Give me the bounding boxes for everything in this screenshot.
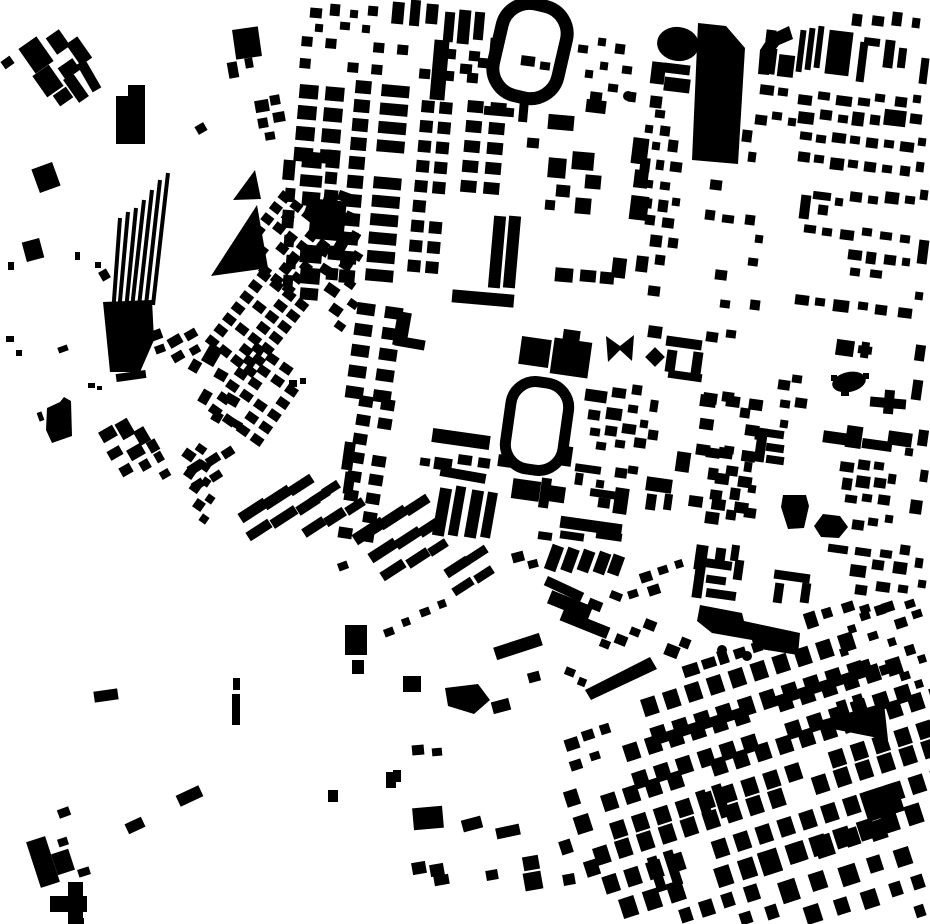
- building: [917, 429, 929, 446]
- building: [665, 336, 702, 351]
- building: [744, 424, 759, 437]
- building: [644, 214, 655, 225]
- building: [858, 97, 871, 106]
- building: [473, 565, 495, 583]
- building: [817, 204, 828, 215]
- building-dot: [717, 645, 727, 655]
- building: [490, 102, 507, 115]
- building: [882, 164, 893, 173]
- building: [443, 12, 456, 43]
- building: [835, 95, 852, 107]
- building: [649, 234, 662, 247]
- building: [412, 806, 444, 831]
- athletics-track-oval: [502, 378, 572, 473]
- building: [873, 477, 886, 489]
- building: [918, 138, 927, 147]
- building: [695, 443, 710, 456]
- building: [841, 477, 853, 490]
- building: [894, 96, 907, 107]
- building: [659, 125, 670, 136]
- building: [409, 0, 421, 26]
- building: [599, 723, 612, 736]
- building: [816, 134, 827, 143]
- building: [706, 558, 733, 571]
- building: [468, 51, 480, 62]
- building: [914, 344, 926, 361]
- building: [706, 588, 737, 601]
- building: [917, 239, 930, 264]
- building: [698, 898, 716, 918]
- building: [822, 227, 833, 236]
- building: [379, 559, 406, 582]
- building: [523, 871, 544, 892]
- building: [794, 397, 807, 409]
- building: [362, 25, 371, 34]
- building: [850, 135, 861, 144]
- building: [267, 408, 282, 422]
- building: [248, 376, 263, 390]
- building: [563, 736, 580, 752]
- building: [106, 445, 123, 461]
- building: [540, 61, 551, 70]
- building: [727, 667, 747, 689]
- building: [371, 455, 387, 468]
- building: [649, 400, 659, 413]
- building: [643, 618, 658, 632]
- building: [839, 229, 854, 241]
- building: [828, 544, 849, 555]
- building-block-grid: [345, 302, 404, 403]
- building: [704, 209, 715, 220]
- building: [920, 738, 930, 760]
- building: [600, 791, 620, 812]
- building: [720, 299, 731, 308]
- building: [248, 279, 263, 293]
- building: [483, 182, 500, 195]
- building: [323, 107, 343, 123]
- building: [600, 271, 615, 284]
- building: [511, 551, 525, 564]
- building: [688, 495, 703, 508]
- building: [645, 180, 654, 189]
- building: [917, 579, 926, 588]
- building: [655, 160, 664, 171]
- flag-building: [445, 684, 490, 714]
- building: [233, 678, 240, 690]
- building: [125, 817, 146, 835]
- building: [353, 99, 370, 113]
- building: [368, 474, 384, 487]
- building: [138, 458, 152, 472]
- building: [842, 795, 862, 817]
- building: [343, 489, 359, 502]
- building: [774, 570, 811, 584]
- building: [465, 545, 488, 565]
- building: [622, 65, 633, 74]
- building-dot: [742, 651, 752, 661]
- building: [682, 662, 701, 678]
- building: [421, 100, 435, 113]
- building: [653, 805, 673, 826]
- building: [899, 544, 910, 555]
- building: [587, 409, 600, 421]
- building: [604, 425, 617, 437]
- building: [347, 175, 364, 189]
- building: [797, 94, 812, 106]
- building: [820, 802, 840, 824]
- building: [264, 310, 279, 324]
- building: [225, 379, 240, 393]
- building: [365, 268, 394, 282]
- building: [803, 611, 819, 630]
- building: [545, 200, 556, 211]
- building: [222, 312, 237, 326]
- building: [419, 68, 431, 79]
- building: [701, 656, 717, 670]
- building: [558, 838, 574, 855]
- building: [814, 154, 825, 163]
- building: [511, 478, 542, 502]
- building: [748, 398, 763, 411]
- building: [813, 26, 824, 68]
- building: [116, 96, 145, 144]
- building: [655, 109, 666, 118]
- building: [706, 575, 727, 586]
- building: [286, 309, 301, 323]
- building: [784, 762, 804, 783]
- building: [649, 95, 662, 108]
- building: [527, 559, 539, 569]
- city-map-canvas: [0, 0, 930, 924]
- building: [232, 26, 262, 59]
- building: [759, 84, 774, 96]
- building: [839, 461, 854, 473]
- building: [272, 111, 286, 123]
- building: [764, 903, 780, 920]
- building: [349, 451, 365, 464]
- building: [431, 428, 490, 450]
- oldtown-triangle-b: [233, 170, 261, 200]
- building: [562, 329, 581, 343]
- building: [791, 374, 802, 383]
- building: [488, 216, 506, 289]
- building: [467, 100, 484, 113]
- building: [347, 62, 359, 73]
- building: [831, 132, 846, 144]
- building: [891, 11, 903, 26]
- building: [740, 776, 760, 797]
- building: [773, 582, 785, 603]
- building: [348, 156, 365, 170]
- building: [57, 344, 68, 353]
- building: [429, 39, 449, 100]
- building: [227, 61, 240, 78]
- building: [640, 695, 660, 717]
- building: [411, 861, 427, 875]
- building: [437, 121, 451, 134]
- building: [563, 788, 581, 808]
- building: [845, 425, 864, 449]
- building: [410, 220, 424, 233]
- building: [835, 339, 855, 357]
- building: [914, 557, 923, 568]
- building: [714, 472, 729, 485]
- building: [838, 114, 849, 123]
- building: [269, 201, 283, 215]
- building: [346, 470, 362, 483]
- building: [657, 199, 668, 212]
- building: [373, 176, 402, 190]
- building: [97, 386, 102, 390]
- building: [675, 798, 695, 819]
- building: [270, 505, 299, 529]
- building: [865, 251, 876, 264]
- building: [815, 297, 826, 306]
- building: [301, 516, 327, 537]
- building: [903, 802, 924, 826]
- building: [443, 556, 470, 579]
- building: [678, 906, 694, 923]
- building: [720, 891, 736, 908]
- building: [445, 49, 457, 60]
- building: [375, 368, 394, 382]
- building: [419, 457, 430, 466]
- building: [639, 197, 652, 208]
- building: [437, 599, 447, 609]
- building: [799, 194, 812, 219]
- building: [609, 590, 623, 602]
- building: [463, 140, 480, 153]
- building: [635, 255, 649, 272]
- building: [614, 837, 634, 859]
- building: [221, 445, 236, 459]
- building: [627, 404, 638, 413]
- building: [808, 870, 829, 892]
- building: [884, 191, 899, 205]
- building: [909, 113, 922, 124]
- wedge-building: [585, 657, 657, 700]
- building: [287, 474, 314, 497]
- building: [527, 671, 541, 684]
- building: [213, 368, 228, 383]
- building: [321, 128, 341, 144]
- building: [674, 559, 684, 569]
- building: [417, 140, 431, 153]
- building: [867, 631, 879, 642]
- building: [745, 795, 765, 817]
- building: [368, 231, 397, 245]
- building: [660, 181, 671, 190]
- building: [614, 43, 625, 54]
- building: [709, 179, 722, 190]
- building: [154, 344, 166, 355]
- building: [905, 195, 916, 204]
- building: [611, 387, 626, 399]
- building: [405, 547, 431, 568]
- building: [908, 773, 928, 795]
- building: [849, 564, 867, 578]
- building: [766, 443, 785, 453]
- building: [871, 559, 884, 571]
- building: [904, 447, 913, 456]
- building: [869, 114, 880, 125]
- building: [457, 10, 472, 45]
- building: [883, 109, 907, 128]
- building: [581, 728, 596, 741]
- building: [425, 4, 439, 25]
- building: [428, 221, 442, 234]
- building: [352, 433, 368, 446]
- building: [391, 2, 405, 25]
- building: [460, 180, 477, 193]
- building: [342, 231, 359, 245]
- building: [0, 56, 14, 70]
- building: [232, 694, 240, 725]
- building: [235, 322, 250, 336]
- building: [297, 105, 317, 121]
- building: [518, 336, 552, 368]
- building: [323, 282, 340, 298]
- building: [614, 439, 625, 448]
- building: [452, 289, 515, 307]
- building: [612, 487, 629, 515]
- building: [269, 94, 281, 106]
- building: [880, 231, 893, 240]
- building: [714, 269, 727, 280]
- building: [663, 494, 673, 511]
- building: [851, 519, 864, 531]
- building: [639, 570, 654, 583]
- building: [870, 269, 883, 278]
- building: [743, 461, 752, 472]
- building: [380, 398, 396, 411]
- building: [888, 880, 904, 897]
- building: [403, 676, 421, 692]
- building: [627, 465, 638, 474]
- building: [636, 830, 656, 852]
- building: [425, 261, 439, 274]
- building: [861, 493, 872, 502]
- building: [578, 44, 589, 53]
- building: [887, 637, 897, 647]
- building: [866, 854, 884, 874]
- building: [862, 227, 873, 236]
- building: [645, 125, 654, 134]
- building: [72, 918, 84, 924]
- building: [377, 417, 393, 430]
- building: [95, 262, 101, 268]
- building: [571, 151, 594, 171]
- building: [345, 194, 362, 208]
- building: [804, 28, 815, 70]
- building: [368, 6, 379, 17]
- building: [913, 904, 926, 919]
- building: [741, 129, 752, 142]
- building: [371, 64, 383, 75]
- building: [623, 866, 643, 888]
- building: [93, 688, 118, 702]
- building: [884, 139, 895, 148]
- building: [256, 321, 271, 335]
- building: [733, 559, 745, 580]
- building: [257, 117, 269, 129]
- building: [915, 162, 924, 173]
- building: [902, 258, 911, 267]
- building: [181, 447, 197, 462]
- building: [684, 681, 704, 703]
- building: [910, 873, 926, 890]
- building: [412, 200, 426, 213]
- building: [691, 559, 706, 598]
- building: [522, 855, 540, 872]
- building: [197, 388, 213, 405]
- building: [213, 323, 228, 337]
- building: [856, 42, 869, 83]
- building: [584, 174, 601, 189]
- building: [159, 468, 172, 480]
- building: [376, 139, 405, 153]
- building: [370, 213, 399, 227]
- building: [340, 250, 357, 264]
- building: [353, 323, 372, 337]
- building: [256, 364, 271, 378]
- building: [114, 418, 135, 441]
- building: [473, 12, 485, 41]
- building: [704, 511, 720, 525]
- building: [711, 837, 731, 859]
- building: [334, 320, 347, 332]
- building: [729, 487, 741, 500]
- building-block-grid: [338, 80, 372, 284]
- building: [851, 13, 862, 26]
- building: [911, 609, 923, 620]
- building: [779, 399, 790, 408]
- building: [909, 499, 923, 515]
- building: [46, 29, 71, 55]
- building: [899, 165, 910, 176]
- building: [647, 583, 662, 596]
- building: [486, 142, 503, 155]
- building: [8, 262, 14, 270]
- building: [803, 903, 824, 924]
- building: [743, 883, 761, 903]
- building: [837, 863, 860, 888]
- building: [738, 910, 753, 924]
- building: [325, 38, 337, 49]
- building: [562, 873, 576, 886]
- building: [779, 419, 788, 428]
- building: [6, 336, 14, 342]
- building: [401, 617, 411, 627]
- building: [381, 327, 400, 341]
- building: [293, 147, 313, 163]
- building: [691, 351, 704, 374]
- building-rounded: [655, 25, 701, 64]
- building: [403, 494, 430, 517]
- building: [204, 493, 215, 504]
- building: [412, 744, 425, 755]
- building-block-grid: [365, 84, 410, 283]
- building: [362, 511, 378, 524]
- building: [813, 191, 832, 201]
- building: [527, 137, 540, 148]
- building: [863, 161, 876, 172]
- building: [465, 120, 482, 133]
- building: [432, 181, 446, 194]
- building: [663, 62, 690, 75]
- building: [744, 214, 755, 225]
- building: [319, 149, 339, 165]
